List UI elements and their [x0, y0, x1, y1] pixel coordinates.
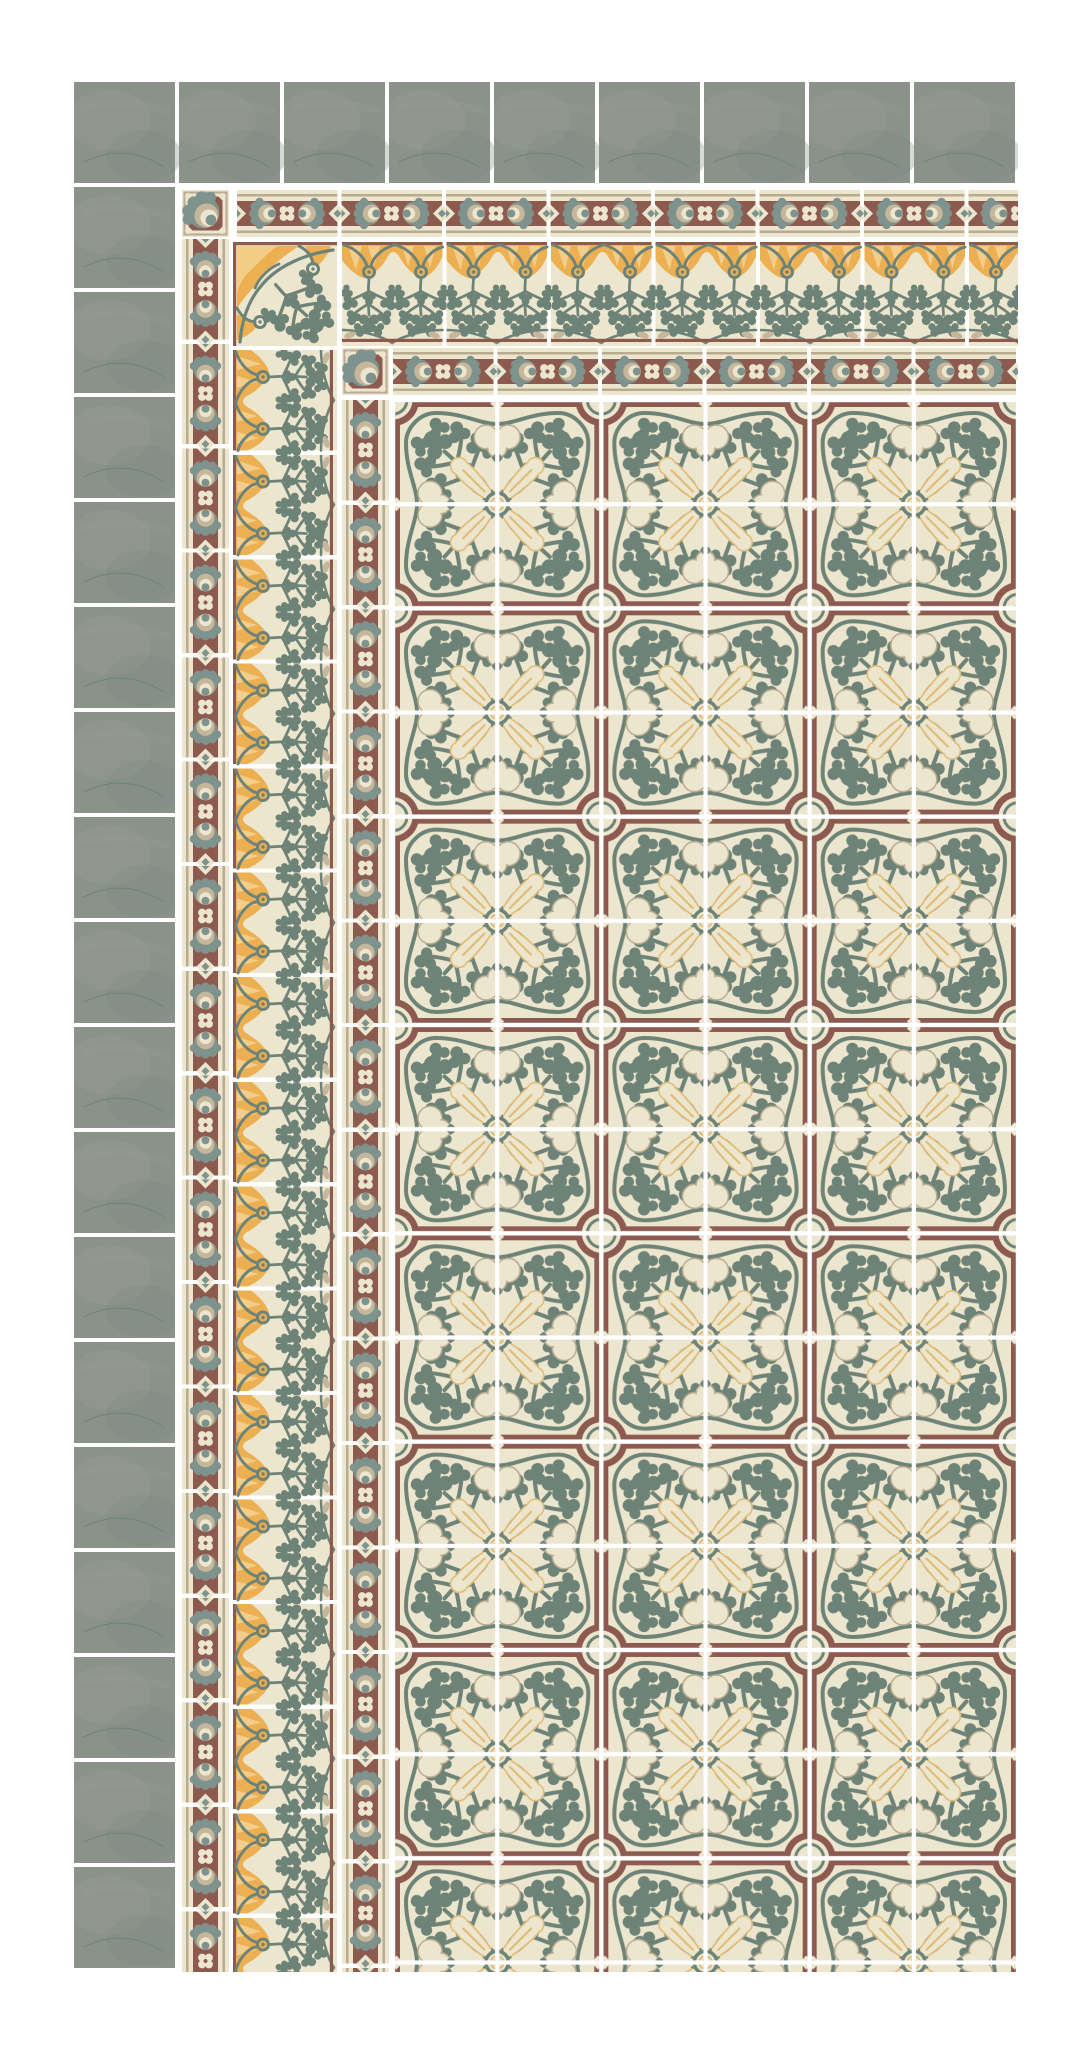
frieze-border-corner — [233, 242, 353, 362]
outer-border-top-surface — [237, 190, 1018, 237]
green-column-surface — [74, 187, 175, 1972]
tile-floor-rendering — [0, 0, 1092, 2048]
frieze-border-left — [233, 350, 337, 1972]
outer-border-left-surface — [182, 239, 229, 1972]
green-tile-top-row — [74, 82, 1018, 183]
inner-medallion-border-top — [393, 348, 1018, 395]
outer-medallion-border-top — [237, 190, 1018, 237]
green-row-surface — [74, 82, 1018, 183]
inner-medallion-border-corner — [334, 341, 390, 397]
frieze-border-top — [342, 242, 1018, 346]
inner-border-left-surface — [342, 400, 389, 1972]
inner-medallion-border-left — [342, 400, 389, 1972]
field-surface — [393, 400, 1018, 1972]
outer-medallion-border-corner — [174, 183, 230, 239]
green-tile-left-column — [74, 187, 175, 1972]
frieze-left-surface — [233, 350, 337, 1972]
patterned-field — [393, 400, 1018, 1972]
tile-layout-canvas — [0, 0, 1092, 2048]
inner-border-top-surface — [393, 348, 1018, 395]
outer-medallion-border-left — [182, 239, 229, 1972]
frieze-top-surface — [342, 242, 1018, 346]
